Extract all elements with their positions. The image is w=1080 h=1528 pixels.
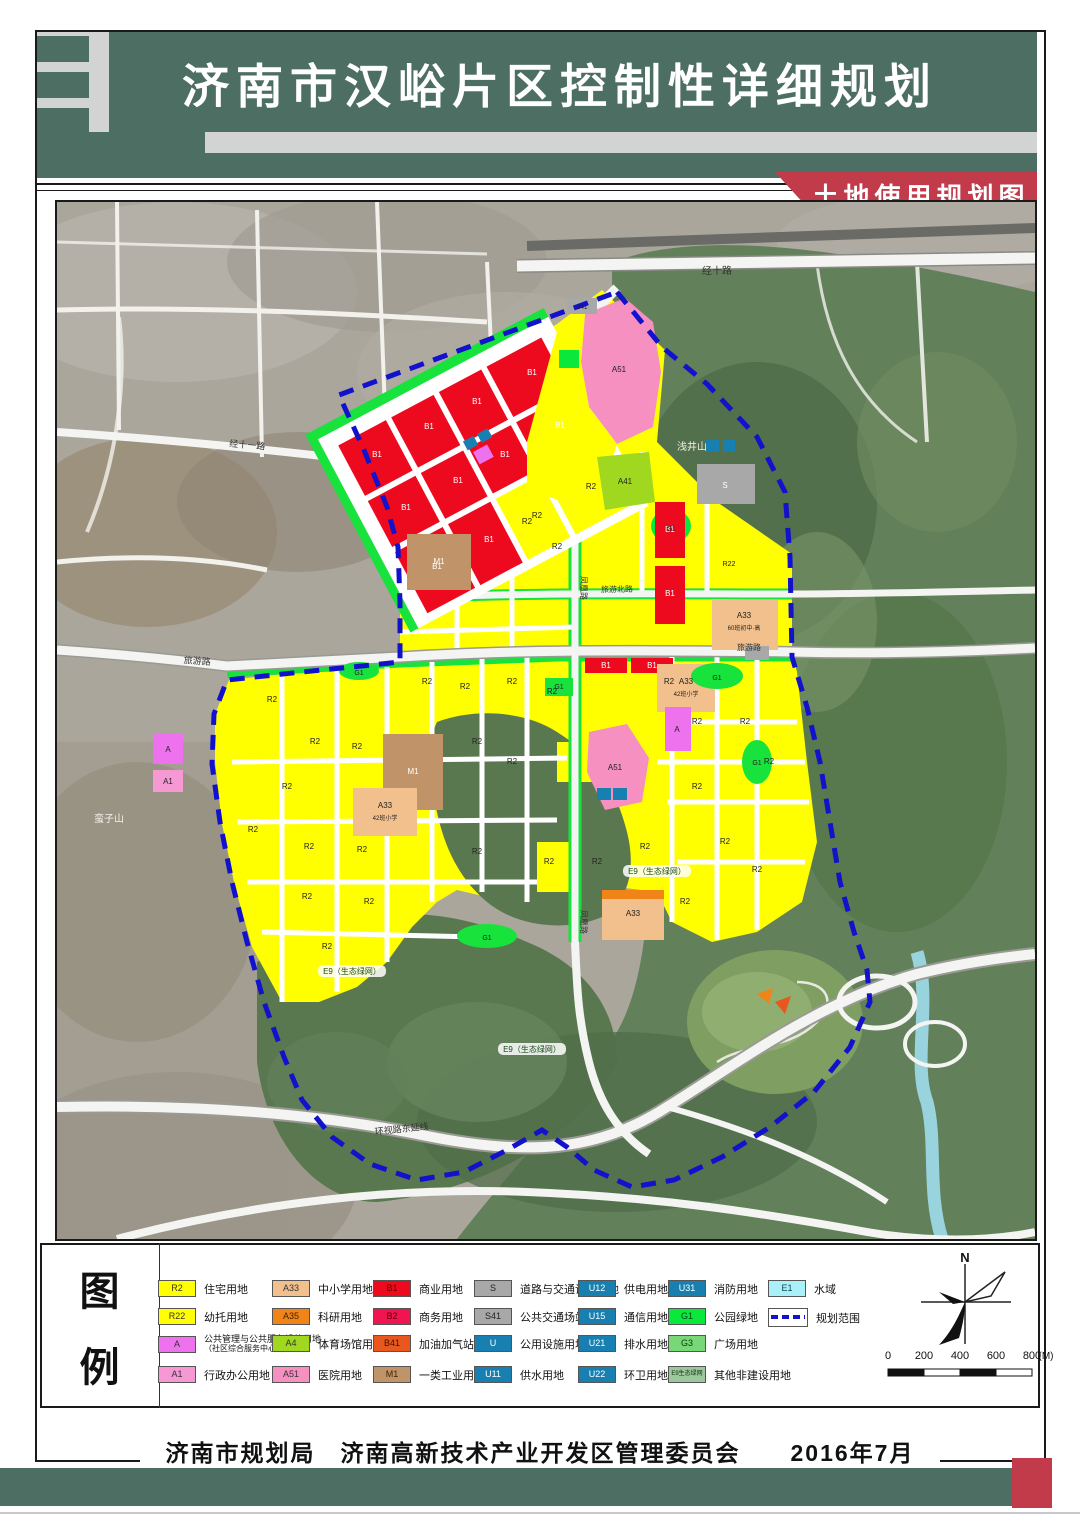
legend-item-E9生态绿网: E9生态绿网其他非建设用地: [668, 1366, 791, 1383]
legend-label: 幼托用地: [204, 1309, 248, 1325]
parcel-label: R2: [692, 717, 703, 726]
parcel-label: R2: [586, 482, 597, 491]
legend-label: 公园绿地: [714, 1309, 758, 1325]
parcel-label: G1: [712, 675, 721, 682]
legend-swatch: U: [474, 1335, 512, 1352]
road-label: 凤凰路: [579, 910, 589, 934]
parcel-label: B1: [527, 368, 537, 377]
legend-heading: 图 例: [40, 1243, 160, 1408]
land-use-map: 经十路经十一路旅游北路旅游路旅游路凤凰路凤凰路环视路东延线浅井山蛮子山E9（生态…: [57, 202, 1035, 1239]
parcel-label: R2: [680, 897, 691, 906]
parcel-label: A1: [163, 777, 173, 786]
footer-red-square: [1012, 1458, 1052, 1508]
legend-item-A4: A4体育场馆用地: [272, 1335, 384, 1352]
eco-label: E9（生态绿网）: [503, 1044, 561, 1054]
parcel-label: 42班小学: [373, 814, 398, 822]
road-label: 经十路: [702, 264, 732, 278]
parcel-label: R2: [472, 847, 483, 856]
parcel-label: R2: [460, 682, 471, 691]
legend-swatch: U11: [474, 1366, 512, 1383]
parcel-label: R2: [302, 892, 313, 901]
parcel-label: M1: [407, 767, 419, 776]
legend-label: 消防用地: [714, 1281, 758, 1297]
parcel-label: R2: [322, 942, 333, 951]
legend-item-U: U公用设施用地: [474, 1335, 586, 1352]
header-gray-stripe: [205, 132, 1037, 153]
legend-label: 供电用地: [624, 1281, 668, 1297]
parcel-label: G1: [354, 670, 363, 677]
parcel-label: A: [165, 745, 171, 754]
parcel-label: G1: [482, 935, 491, 942]
parcel-label: A33: [737, 611, 752, 620]
legend-swatch: G3: [668, 1335, 706, 1352]
parcel-label: R2: [267, 695, 278, 704]
parcel-label: A41: [618, 477, 633, 486]
legend-item-U11: U11供水用地: [474, 1366, 564, 1383]
scale-unit: (M): [1039, 1351, 1054, 1362]
legend-swatch: S: [474, 1280, 512, 1297]
legend-swatch: U22: [578, 1366, 616, 1383]
legend-label: 排水用地: [624, 1336, 668, 1352]
legend-swatch: U31: [668, 1280, 706, 1297]
legend-item-B2: B2商务用地: [373, 1308, 463, 1325]
parcel-label: B1: [555, 421, 565, 430]
eco-label: E9（生态绿网）: [628, 866, 686, 876]
parcel-label: R2: [422, 677, 433, 686]
legend-label: 广场用地: [714, 1336, 758, 1352]
parcel-label: B1: [424, 422, 434, 431]
legend-item-A33: A33中小学用地: [272, 1280, 373, 1297]
legend-item-M1: M1一类工业用地: [373, 1366, 485, 1383]
legend-item-U15: U15通信用地: [578, 1308, 668, 1325]
parcel-label: B1: [484, 535, 494, 544]
parcel-label: R2: [752, 865, 763, 874]
road-label: 旅游北路: [601, 584, 633, 595]
parcel-label: M1: [433, 557, 445, 566]
legend-label: 通信用地: [624, 1309, 668, 1325]
parcel-label: G1: [752, 760, 761, 767]
parcel-label: A33: [679, 677, 694, 686]
legend-swatch: A: [158, 1336, 196, 1353]
parcel-label: 60班初中·高: [728, 624, 761, 632]
legend-item-U21: U21排水用地: [578, 1335, 668, 1352]
parcel-label: R2: [544, 857, 555, 866]
legend-label: 中小学用地: [318, 1281, 373, 1297]
parcel-label: B1: [372, 450, 382, 459]
north-label: N: [960, 1252, 969, 1265]
legend-label: 医院用地: [318, 1367, 362, 1383]
legend-swatch: U15: [578, 1308, 616, 1325]
legend-item-A35: A35科研用地: [272, 1308, 362, 1325]
legend-swatch: A33: [272, 1280, 310, 1297]
legend-heading-char-1: 图: [80, 1259, 120, 1317]
legend-swatch: G1: [668, 1308, 706, 1325]
legend-swatch: A4: [272, 1335, 310, 1352]
parcel-label: R2: [364, 897, 375, 906]
legend-label: 商业用地: [419, 1281, 463, 1297]
scale-tick: 600: [987, 1350, 1005, 1362]
parcel-label: A51: [612, 365, 627, 374]
legend-heading-char-2: 例: [80, 1335, 120, 1393]
parcel-label: R2: [720, 837, 731, 846]
legend-swatch: A51: [272, 1366, 310, 1383]
legend-swatch: U21: [578, 1335, 616, 1352]
road-label: 旅游路: [183, 654, 211, 667]
parcel-label: A: [674, 725, 680, 734]
legend-swatch: A1: [158, 1366, 196, 1383]
scale-tick: 200: [915, 1350, 933, 1362]
parcel-label: A51: [608, 763, 623, 772]
legend-label: 其他非建设用地: [714, 1367, 791, 1383]
legend-swatch: A35: [272, 1308, 310, 1325]
parcel-label: R2: [304, 842, 315, 851]
legend-swatch: M1: [373, 1366, 411, 1383]
scale-segment: [996, 1369, 1032, 1376]
parcel-label: R2: [352, 742, 363, 751]
legend-item-U12: U12供电用地: [578, 1280, 668, 1297]
scale-bar: 0200400600800(M): [878, 1345, 1068, 1387]
parcel-label: R2: [472, 737, 483, 746]
parcel-label: R2: [310, 737, 321, 746]
scale-segment: [960, 1369, 996, 1376]
legend-label: 规划范围: [816, 1310, 860, 1326]
scale-tick: 400: [951, 1350, 969, 1362]
parcel-label: B1: [453, 476, 463, 485]
legend-item-G1: G1公园绿地: [668, 1308, 758, 1325]
legend-swatch: R22: [158, 1308, 196, 1325]
legend-item-E1: E1水域: [768, 1280, 836, 1297]
parcel-label: G1: [666, 526, 675, 533]
scale-tick: 0: [885, 1350, 891, 1362]
parcel-label: 42班小学: [674, 690, 699, 698]
road-label: 旅游路: [737, 642, 761, 652]
legend-label: 住宅用地: [204, 1281, 248, 1297]
legend-item-B1: B1商业用地: [373, 1280, 463, 1297]
legend-swatch: E9生态绿网: [668, 1366, 706, 1383]
parcel-label: R2: [507, 677, 518, 686]
legend-swatch: R2: [158, 1280, 196, 1297]
legend-item-boundary: 规划范围: [768, 1308, 860, 1327]
parcel-label: R2: [547, 687, 558, 696]
legend-item-R22: R22幼托用地: [158, 1308, 248, 1325]
parcel-label: B1: [665, 589, 675, 598]
area-label: 浅井山: [677, 440, 707, 453]
parcel-label: R2: [282, 782, 293, 791]
parcel-label: R2: [522, 517, 533, 526]
scale-segment: [924, 1369, 960, 1376]
legend-swatch: S41: [474, 1308, 512, 1325]
boundary-swatch: [768, 1308, 808, 1327]
north-arrow: N: [905, 1252, 1025, 1347]
parcel-label: R2: [532, 511, 543, 520]
legend-swatch: B2: [373, 1308, 411, 1325]
footer-rule: [0, 1512, 1080, 1514]
parcel-label: R2: [764, 757, 775, 766]
legend-item-R2: R2住宅用地: [158, 1280, 248, 1297]
legend-item-G3: G3广场用地: [668, 1335, 758, 1352]
legend-item-A1: A1行政办公用地: [158, 1366, 270, 1383]
parcel-label: R2: [357, 845, 368, 854]
parcel-label: B1: [401, 503, 411, 512]
parcel-label: A33: [378, 801, 393, 810]
legend-item-U22: U22环卫用地: [578, 1366, 668, 1383]
legend-label: 水域: [814, 1281, 836, 1297]
parcel-label: R2: [640, 842, 651, 851]
parcel-label: S41: [577, 305, 588, 311]
scale-segment: [888, 1369, 924, 1376]
map-frame: 经十路经十一路旅游北路旅游路旅游路凤凰路凤凰路环视路东延线浅井山蛮子山E9（生态…: [55, 200, 1037, 1241]
legend-label: 科研用地: [318, 1309, 362, 1325]
legend-label: 公用设施用地: [520, 1336, 586, 1352]
legend-swatch: B41: [373, 1335, 411, 1352]
legend-label: 行政办公用地: [204, 1367, 270, 1383]
parcel-label: R2: [664, 677, 675, 686]
plan-sheet: 济南市汉峪片区控制性详细规划 土地使用规划图: [0, 0, 1080, 1528]
legend-swatch: E1: [768, 1280, 806, 1297]
legend-swatch: B1: [373, 1280, 411, 1297]
road-label: 凤凰路: [579, 576, 589, 600]
parcel-label: R2: [248, 825, 259, 834]
parcel-label: B1: [472, 397, 482, 406]
parcel-label: B1: [601, 661, 611, 670]
footer-green-bar: [0, 1468, 1012, 1506]
area-label: 蛮子山: [94, 812, 124, 825]
legend-label: 商务用地: [419, 1309, 463, 1325]
page-title: 济南市汉峪片区控制性详细规划: [110, 48, 1010, 117]
header-green-stripe-left: [37, 132, 205, 178]
legend-label: 环卫用地: [624, 1367, 668, 1383]
parcel-label: B1: [500, 450, 510, 459]
parcel-label: R2: [740, 717, 751, 726]
parcel-label: B1: [647, 661, 657, 670]
parcel-label: R2: [552, 542, 563, 551]
eco-label: E9（生态绿网）: [323, 966, 381, 976]
parcel-label: R2: [507, 757, 518, 766]
legend-label: 供水用地: [520, 1367, 564, 1383]
footer-credit: 济南市规划局 济南高新技术产业开发区管理委员会 2016年7月: [140, 1434, 940, 1468]
parcel-label: A33: [626, 909, 641, 918]
parcel-label: R2: [592, 857, 603, 866]
legend-item-A51: A51医院用地: [272, 1366, 362, 1383]
parcel-label: R22: [723, 561, 736, 568]
parcel-label: S: [722, 481, 727, 490]
parcel-label: R2: [692, 782, 703, 791]
legend-swatch: U12: [578, 1280, 616, 1297]
legend-item-U31: U31消防用地: [668, 1280, 758, 1297]
